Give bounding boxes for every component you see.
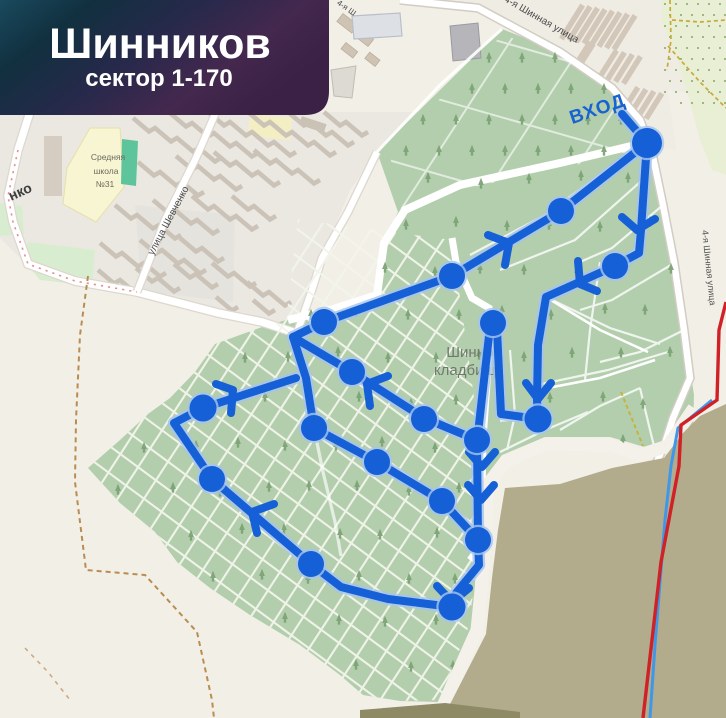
svg-text:Шинников: Шинников [49, 20, 271, 68]
svg-text:школа: школа [94, 166, 119, 176]
svg-text:№31: №31 [96, 179, 115, 189]
svg-text:Средняя: Средняя [91, 152, 126, 162]
svg-text:сектор 1-170: сектор 1-170 [85, 65, 233, 92]
